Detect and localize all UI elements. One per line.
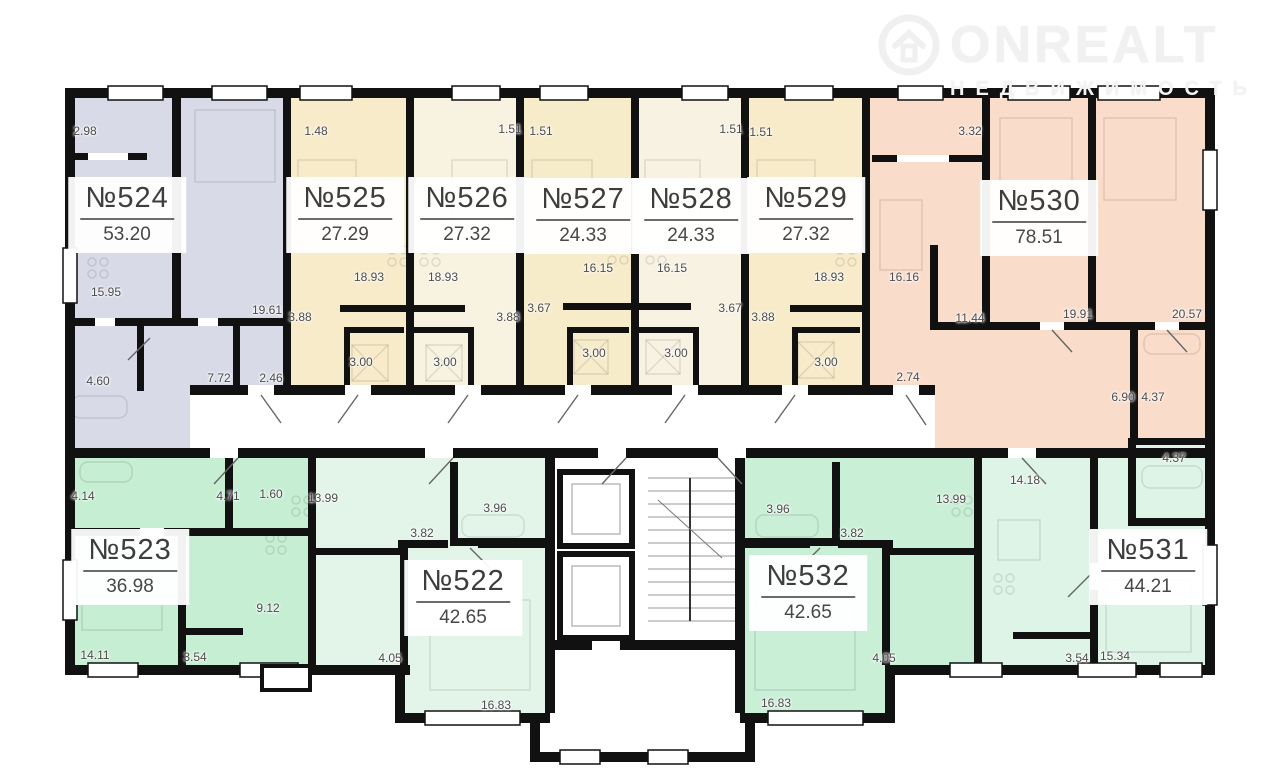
onrealt-watermark: ONREALT НЕДВИЖИМОСТЬ (878, 14, 1238, 101)
apartment-badge-523[interactable]: №523 36.98 (71, 529, 189, 605)
room-area-label: 3.00 (349, 355, 372, 369)
apartment-number: №524 (80, 182, 174, 220)
house-icon (878, 14, 940, 76)
apartment-area: 24.33 (644, 221, 738, 247)
room-area-label: 4.05 (378, 651, 401, 665)
room-area-label: 16.83 (761, 696, 791, 710)
apartment-number: №531 (1101, 534, 1195, 572)
room-area-label: 4.14 (71, 489, 94, 503)
room-area-label: 4.60 (86, 374, 109, 388)
room-area-label: 3.54 (1065, 651, 1088, 665)
room-area-label: 16.15 (583, 261, 613, 275)
apartment-530-region[interactable] (935, 390, 1130, 448)
room-area-label: 6.90 (1111, 390, 1134, 404)
apartment-number: №532 (761, 560, 855, 598)
room-area-label: 3.88 (496, 310, 519, 324)
room-area-label: 3.54 (183, 650, 206, 664)
apartment-524-region[interactable] (75, 390, 190, 448)
room-area-label: 3.82 (840, 526, 863, 540)
room-area-label: 3.82 (410, 526, 433, 540)
room-area-label: 13.99 (308, 491, 338, 505)
room-area-label: 20.57 (1172, 307, 1202, 321)
apartment-badge-525[interactable]: №525 27.29 (286, 177, 404, 253)
room-area-label: 9.12 (256, 601, 279, 615)
apartment-number: №529 (759, 182, 853, 220)
room-area-label: 18.93 (354, 270, 384, 284)
apartment-number: №523 (83, 534, 177, 572)
room-area-label: 3.00 (433, 355, 456, 369)
apartment-badge-529[interactable]: №529 27.32 (747, 177, 865, 253)
apartment-badge-528[interactable]: №528 24.33 (632, 178, 750, 254)
elevator-shafts (560, 472, 632, 638)
apartment-area: 27.29 (298, 220, 392, 246)
room-area-label: 2.98 (73, 124, 96, 138)
apartment-area: 53.20 (80, 220, 174, 246)
room-area-label: 13.99 (936, 492, 966, 506)
room-area-label: 1.60 (259, 487, 282, 501)
staircase (648, 478, 735, 621)
room-area-label: 3.67 (718, 301, 741, 315)
apartment-area: 27.32 (420, 220, 514, 246)
room-area-label: 1.51 (749, 125, 772, 139)
apartment-area: 24.33 (536, 221, 630, 247)
room-area-label: 16.15 (657, 261, 687, 275)
apartment-number: №526 (420, 182, 514, 220)
room-area-label: 3.96 (766, 502, 789, 516)
room-area-label: 15.34 (1100, 649, 1130, 663)
room-area-label: 3.67 (527, 301, 550, 315)
apartment-area: 36.98 (83, 572, 177, 598)
room-area-label: 3.32 (958, 124, 981, 138)
room-area-label: 14.18 (1010, 473, 1040, 487)
floor-plan-canvas: №524 53.20 №525 27.29 №526 27.32 №527 24… (0, 0, 1280, 777)
room-area-label: 1.51 (498, 122, 521, 136)
room-area-label: 19.61 (252, 303, 282, 317)
room-area-label: 2.74 (896, 370, 919, 384)
room-area-label: 3.00 (814, 355, 837, 369)
room-area-label: 4.37 (1162, 451, 1185, 465)
room-area-label: 15.95 (91, 285, 121, 299)
room-area-label: 1.51 (529, 124, 552, 138)
apartment-number: №528 (644, 183, 738, 221)
room-area-label: 3.88 (288, 310, 311, 324)
apartment-badge-527[interactable]: №527 24.33 (524, 178, 642, 254)
room-area-label: 4.71 (216, 489, 239, 503)
apartment-area: 42.65 (416, 603, 510, 629)
apartment-area: 27.32 (759, 220, 853, 246)
brand-name: ONREALT (950, 15, 1218, 75)
apartment-badge-524[interactable]: №524 53.20 (68, 177, 186, 253)
room-area-label: 3.00 (664, 346, 687, 360)
apartment-badge-530[interactable]: №530 78.51 (980, 180, 1098, 256)
room-area-label: 4.37 (1141, 390, 1164, 404)
apartment-number: №527 (536, 183, 630, 221)
apartment-number: №530 (992, 185, 1086, 223)
apartment-area: 42.65 (761, 598, 855, 624)
room-area-label: 11.44 (955, 311, 984, 325)
room-area-label: 16.16 (889, 270, 919, 284)
apartment-522-region[interactable] (400, 665, 545, 713)
room-area-label: 3.96 (483, 501, 506, 515)
apartment-badge-522[interactable]: №522 42.65 (404, 560, 522, 636)
room-area-label: 16.83 (481, 698, 511, 712)
room-area-label: 18.93 (814, 270, 844, 284)
apartment-badge-531[interactable]: №531 44.21 (1089, 529, 1207, 605)
apartment-area: 44.21 (1101, 572, 1195, 598)
room-area-label: 3.00 (582, 346, 605, 360)
room-area-label: 4.05 (872, 651, 895, 665)
room-area-label: 3.88 (751, 310, 774, 324)
room-area-label: 1.48 (304, 124, 327, 138)
apartment-area: 78.51 (992, 223, 1086, 249)
room-area-label: 1.51 (719, 122, 742, 136)
apartment-badge-532[interactable]: №532 42.65 (749, 555, 867, 631)
apartment-number: №525 (298, 182, 392, 220)
room-area-label: 18.93 (428, 270, 458, 284)
room-area-label: 2.46 (259, 371, 282, 385)
apartment-badge-526[interactable]: №526 27.32 (408, 177, 526, 253)
apartment-number: №522 (416, 565, 510, 603)
room-area-label: 14.11 (80, 648, 109, 662)
room-area-label: 7.72 (207, 371, 230, 385)
room-area-label: 19.91 (1063, 307, 1093, 321)
